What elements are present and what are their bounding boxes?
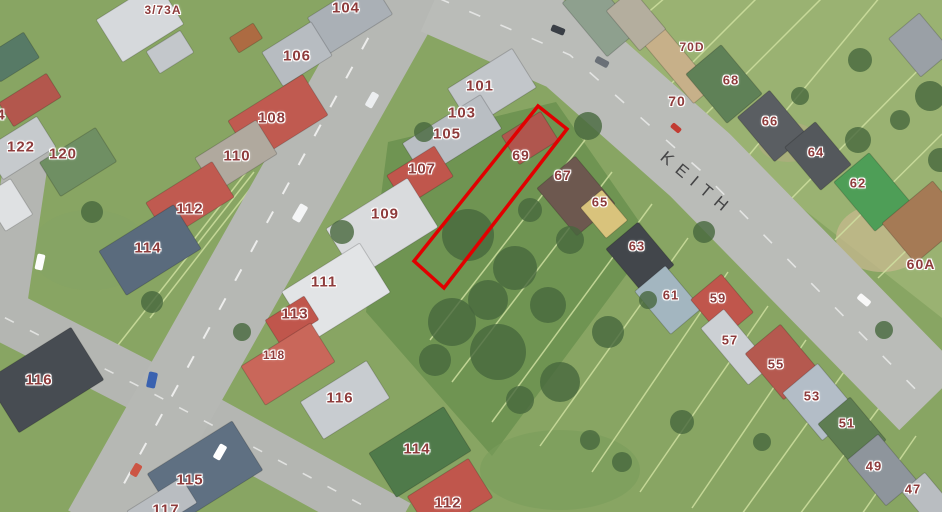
house-roof [0,32,39,82]
tree [330,220,354,244]
tree [141,291,163,313]
tree [670,410,694,434]
tree [890,110,910,130]
fence-line [640,306,768,492]
house-roof [229,23,262,53]
tree [530,287,566,323]
tree [753,433,771,451]
tree [468,280,508,320]
tree [233,323,251,341]
tree [518,198,542,222]
tree [419,344,451,376]
tree [848,48,872,72]
tree [791,87,809,105]
tree [875,321,893,339]
tree [556,226,584,254]
tree [81,201,103,223]
tree [493,246,537,290]
tree [506,386,534,414]
house-roof [0,73,61,126]
tree [639,291,657,309]
tree [414,122,434,142]
map-viewport[interactable]: 3/73A10410641221201081101011031051071091… [0,0,942,512]
tree [612,452,632,472]
tree [592,316,624,348]
tree [845,127,871,153]
tree [574,112,602,140]
tree [470,324,526,380]
house-roof [39,128,116,197]
tree [693,221,715,243]
tree [580,430,600,450]
aerial-imagery [0,0,942,512]
tree [540,362,580,402]
